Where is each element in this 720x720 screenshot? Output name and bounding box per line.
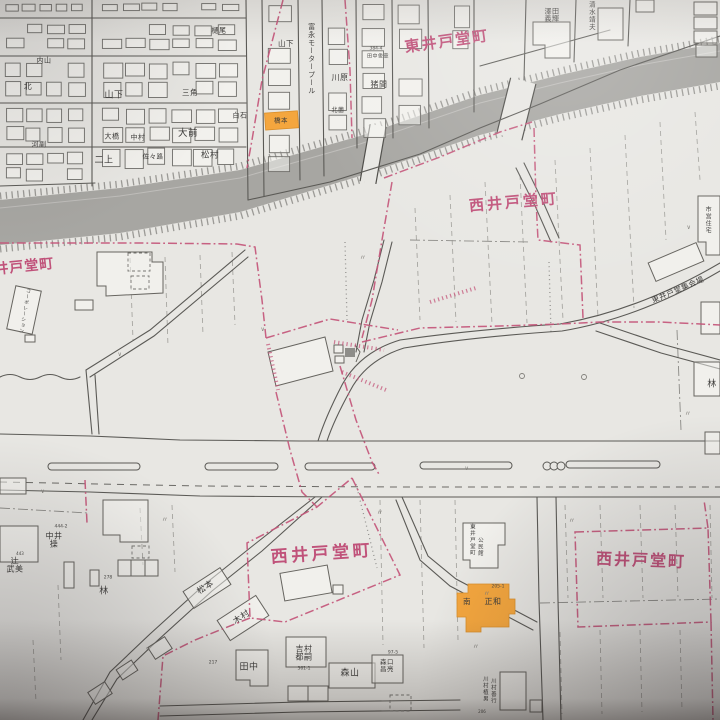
resident-name-label: 三角 [182, 89, 198, 97]
resident-name-label: 正和 [485, 598, 502, 606]
paddy-ditto-mark: 〃 [568, 517, 576, 524]
lot-number: 206 [478, 710, 486, 714]
paddy-ditto-mark: 〃 [472, 643, 480, 650]
resident-name-label: 森山 [340, 669, 359, 678]
resident-name-label: 木村 [232, 609, 252, 626]
resident-name-label: 橋本 [274, 118, 288, 125]
district-name-label: 西井戸堂町 [0, 257, 55, 279]
resident-name-label: 川村植男 [481, 676, 487, 702]
resident-name-label: 川村善行 [489, 678, 495, 704]
lot-number: 278 [104, 577, 113, 582]
resident-name-label: 二上 [94, 156, 113, 165]
resident-name-label: 北 [24, 83, 33, 91]
lot-number: 444-2 [54, 526, 67, 531]
district-name-label: 東井戸堂町 [404, 28, 490, 55]
lot-number: 384-4 [369, 48, 382, 53]
lot-number: 443 [16, 552, 24, 556]
field-check-mark: ∨ [687, 225, 692, 231]
resident-name-label: 松村 [201, 152, 219, 161]
resident-name-label: 川原 [332, 74, 349, 82]
paddy-ditto-mark: 〃 [376, 509, 384, 516]
lot-number: 217 [209, 662, 218, 667]
resident-name-label: 田中俊章 [367, 54, 389, 59]
resident-name-label: 北薗 [331, 108, 344, 114]
lot-number: 361-1 [297, 668, 310, 673]
resident-name-label: 東井戸堂町 [468, 524, 474, 557]
resident-name-label: 田中 [239, 663, 258, 672]
paddy-ditto-mark: 〃 [483, 590, 491, 597]
resident-name-label: 中井 操 [46, 533, 63, 550]
resident-name-label: 公民館 [476, 537, 482, 557]
resident-name-label: 富永モータープール [307, 23, 314, 95]
resident-name-label: 南 [463, 598, 471, 606]
field-check-mark: ∨ [261, 327, 266, 333]
resident-name-label: 白石 [233, 112, 248, 119]
district-name-label: 西井戸堂町 [596, 551, 687, 571]
resident-name-label: 山下 [104, 91, 123, 100]
district-name-label: 西井戸堂町 [468, 191, 559, 215]
resident-name-label: 林 [707, 380, 717, 389]
field-check-mark: ∨ [118, 352, 123, 358]
resident-name-label: 大橋 [105, 133, 120, 140]
resident-name-label: 清水靖夫 [588, 1, 595, 31]
map-photo: 東井戸堂町西井戸堂町西井戸堂町西井戸堂町西井戸堂町内山北山下三角樋尾白石大橋中村… [0, 0, 720, 720]
resident-name-label: 辻 武美 [7, 558, 24, 575]
field-check-mark: ∨ [465, 466, 470, 472]
resident-name-label: 松本 [196, 579, 216, 596]
paddy-ditto-mark: 〃 [359, 254, 367, 261]
district-name-label: 西井戸堂町 [270, 543, 373, 568]
resident-name-label: 東井戸堂集会場 [651, 275, 706, 304]
resident-name-label: 佐々路 [143, 154, 164, 161]
lot-number: 205-1 [491, 586, 504, 591]
map-labels-layer: 東井戸堂町西井戸堂町西井戸堂町西井戸堂町西井戸堂町内山北山下三角樋尾白石大橋中村… [0, 0, 720, 720]
resident-name-label: 河副 [32, 141, 47, 148]
resident-name-label: コーポレーション [17, 288, 30, 335]
resident-name-label: 澤田 義輝 [545, 9, 560, 24]
resident-name-label: 山下 [278, 40, 294, 48]
resident-name-label: 樋尾 [212, 27, 227, 34]
resident-name-label: 内山 [37, 57, 52, 64]
resident-name-label: 林 [99, 587, 109, 596]
paddy-ditto-mark: 〃 [161, 516, 169, 523]
resident-name-label: 中村 [131, 134, 146, 141]
lot-number: 97-5 [388, 652, 398, 657]
resident-name-label: 猪間 [371, 81, 388, 89]
resident-name-label: 森口 昌亮 [380, 659, 394, 673]
resident-name-label: 市営住宅 [704, 206, 710, 234]
field-check-mark: ∨ [146, 647, 151, 653]
paddy-ditto-mark: 〃 [684, 410, 692, 417]
resident-name-label: 吉村 都嗣 [296, 646, 313, 663]
field-check-mark: ∨ [41, 489, 46, 495]
resident-name-label: 大前 [178, 129, 198, 139]
